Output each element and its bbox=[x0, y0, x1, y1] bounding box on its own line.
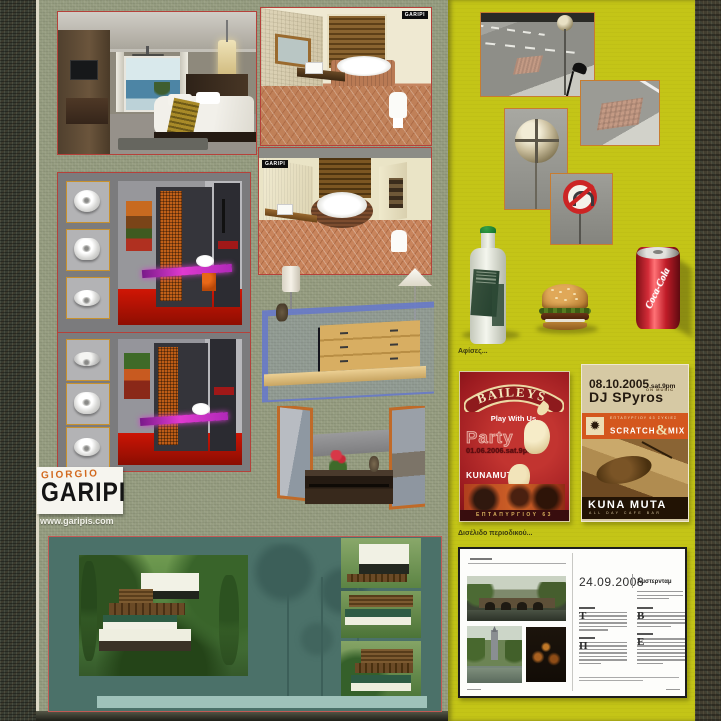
bathroom1-render: GARIPI bbox=[260, 7, 432, 146]
cream-splash-large bbox=[524, 420, 550, 454]
crosswalk-patch bbox=[513, 55, 543, 74]
vanity-b-scene bbox=[118, 339, 242, 465]
sign-pole bbox=[579, 214, 581, 244]
villa-panel bbox=[48, 536, 442, 712]
text-line bbox=[637, 659, 685, 660]
magazine-intro bbox=[637, 589, 683, 602]
bench-basin bbox=[277, 204, 293, 215]
sink-thumb-2 bbox=[66, 229, 110, 271]
text-line bbox=[637, 663, 663, 664]
curb-line bbox=[634, 80, 660, 94]
magazine-spread: 24.09.2008 Αμστερνταμ Τ Π Β bbox=[458, 547, 687, 698]
bathroom2-render: GARIPI bbox=[258, 147, 432, 275]
round-tub bbox=[317, 192, 367, 218]
teal-footer-bar bbox=[97, 696, 427, 708]
pool bbox=[345, 609, 411, 617]
villa-lower-box bbox=[99, 629, 191, 651]
right-edge-texture bbox=[695, 0, 721, 721]
baileys-datetime: 01.06.2006.sat.9pm bbox=[466, 446, 534, 455]
text-line bbox=[579, 622, 627, 623]
sphere-pole bbox=[535, 163, 537, 209]
dj-amp: & bbox=[656, 422, 669, 438]
bottle-label-side bbox=[492, 284, 504, 326]
bun-top bbox=[542, 284, 588, 310]
sink-thumb-3 bbox=[66, 277, 110, 319]
thatch-roof bbox=[119, 589, 153, 603]
turntable-photo bbox=[582, 439, 688, 501]
thatch bbox=[361, 649, 413, 663]
orange-mosaic-panel bbox=[158, 347, 178, 445]
text-line bbox=[579, 652, 627, 653]
media-cabinet bbox=[305, 470, 393, 504]
lane-dashes-1 bbox=[480, 24, 545, 36]
toilet bbox=[389, 92, 407, 118]
lamp-stand bbox=[566, 71, 574, 97]
palm-trunks bbox=[287, 567, 289, 697]
logo-garipi: GARIPI bbox=[41, 478, 119, 506]
sink-icon bbox=[74, 352, 100, 366]
sink-icon bbox=[74, 238, 100, 260]
magazine-title: Αμστερνταμ bbox=[637, 579, 672, 585]
lamp-pole bbox=[564, 29, 566, 95]
drawer-handles bbox=[340, 332, 348, 334]
text-line bbox=[579, 663, 601, 664]
dj-footer-band: KUNA MUTA ALL DAY CAFE BAR bbox=[582, 497, 688, 519]
bedroom-render bbox=[57, 11, 257, 155]
amsterdam-pano-photo bbox=[467, 576, 566, 621]
dropcap: Π bbox=[579, 642, 588, 651]
cabinet-shelf bbox=[309, 484, 389, 487]
sideboard-render bbox=[262, 295, 434, 402]
dropcap: Τ bbox=[579, 612, 586, 621]
bedroom-tv bbox=[70, 60, 98, 80]
baileys-poster: BAILEYS Play With Us. Party 01.06.2006.s… bbox=[459, 371, 570, 522]
text-line bbox=[579, 629, 608, 630]
thatch bbox=[349, 595, 413, 607]
footer-line-1 bbox=[579, 677, 679, 678]
villa-photo-small-2 bbox=[341, 591, 421, 638]
curtain-left bbox=[116, 52, 124, 112]
dj-venue-sub: ALL DAY CAFE BAR bbox=[582, 511, 688, 515]
crosswalk-patch bbox=[597, 98, 643, 131]
canal-church-photo bbox=[467, 626, 522, 683]
magazine-column-2: Β Ε bbox=[637, 607, 685, 666]
paragraph: Τ bbox=[579, 612, 627, 631]
paragraph: Ε bbox=[637, 638, 685, 664]
dj-scratch: SCRATCH bbox=[610, 426, 656, 435]
dj-poster: 08.10.2005.sat.9pm DJ SPyros ON MUSIC ✹ … bbox=[581, 364, 689, 522]
bedroom-sideboard bbox=[66, 98, 108, 124]
sesame-seeds bbox=[551, 289, 554, 291]
orange-mosaic-panel bbox=[160, 191, 182, 301]
page-fold bbox=[572, 553, 573, 691]
portfolio-board: GARIPI GARIPI bbox=[0, 0, 721, 721]
paragraph-header bbox=[579, 607, 595, 609]
road-render-4 bbox=[550, 173, 613, 245]
sphere-strap-h bbox=[515, 139, 559, 142]
dj-orange-band: ✹ ΕΠΤΑΠΥΡΓΙΟΥ 63 ΣΥΚΙΕΣ SCRATCH&MIX bbox=[582, 413, 688, 439]
villa-pool bbox=[103, 615, 177, 622]
baileys-address: ΕΠΤΑΠΥΡΓΙΟΥ 63 ΣΥΚΙΕΣ bbox=[460, 510, 569, 521]
basin bbox=[305, 62, 323, 74]
floor-lamp-shade bbox=[282, 266, 300, 292]
cabinet-handle bbox=[222, 199, 225, 233]
rug bbox=[118, 138, 208, 150]
tonearm bbox=[642, 441, 673, 459]
vanity-render-a bbox=[57, 172, 251, 334]
label-line bbox=[476, 275, 496, 278]
paragraph-header bbox=[579, 637, 595, 639]
sink-thumb-6 bbox=[66, 427, 110, 469]
paragraph-header bbox=[637, 633, 653, 635]
dj-address: ΕΠΤΑΠΥΡΓΙΟΥ 63 ΣΥΚΙΕΣ bbox=[610, 416, 677, 420]
trees bbox=[505, 640, 522, 668]
text-line bbox=[637, 595, 683, 596]
counter-basin bbox=[196, 255, 214, 267]
sink-icon bbox=[74, 392, 100, 414]
red-accent bbox=[214, 387, 234, 395]
text-line bbox=[637, 649, 685, 650]
vanity-a-scene bbox=[118, 181, 242, 325]
text-line bbox=[637, 591, 683, 592]
date-divider bbox=[632, 574, 633, 588]
burger-render bbox=[537, 284, 594, 331]
palm-foreground bbox=[81, 561, 97, 661]
dj-mix: MIX bbox=[668, 426, 685, 435]
bottom-shadow-band bbox=[36, 711, 448, 721]
villa-photo-large bbox=[79, 555, 248, 676]
road-render-2 bbox=[580, 80, 660, 146]
water bbox=[467, 668, 522, 683]
wood-drawers bbox=[320, 320, 420, 371]
page-number-left bbox=[467, 689, 481, 690]
trees bbox=[467, 638, 485, 668]
sink-icon bbox=[74, 190, 100, 212]
header-rule bbox=[468, 563, 566, 564]
baileys-tagline: Play With Us. bbox=[460, 414, 569, 423]
paragraph: Π bbox=[579, 642, 627, 664]
logo-box: GIORGIO GARIPI bbox=[37, 467, 123, 514]
magazine-column-1: Τ Π bbox=[579, 607, 627, 666]
logo-website: www.garipis.com bbox=[40, 516, 114, 526]
dj-artist-note: ON MUSIC bbox=[646, 387, 674, 392]
lamp-head-silhouette bbox=[572, 61, 589, 75]
counter-basin bbox=[192, 403, 210, 415]
sink-thumb-5 bbox=[66, 383, 110, 425]
magazine-date: 24.09.2008 bbox=[579, 575, 644, 589]
bedroom-wood-wall bbox=[58, 30, 110, 154]
dropcap: Ε bbox=[637, 638, 644, 647]
label-line bbox=[476, 271, 496, 274]
bun-bottom bbox=[543, 322, 587, 330]
decor-object bbox=[369, 456, 379, 472]
street-lights bbox=[530, 635, 562, 675]
sink-icon bbox=[74, 438, 100, 456]
lamp-cord bbox=[226, 20, 228, 42]
text-line bbox=[579, 626, 627, 627]
shelf-unit bbox=[389, 178, 403, 208]
text-line bbox=[637, 656, 685, 657]
wall-art bbox=[126, 201, 152, 251]
footer-line-2 bbox=[579, 680, 643, 681]
villa-wood-band bbox=[109, 603, 185, 615]
label-line bbox=[476, 278, 496, 281]
villa-wood bbox=[347, 574, 407, 582]
sink-icon bbox=[74, 290, 100, 306]
canal-water bbox=[467, 610, 566, 621]
scratch-mix-row: SCRATCH&MIX bbox=[610, 422, 685, 440]
text-line bbox=[637, 626, 671, 627]
dark-cabinet-right bbox=[210, 339, 236, 451]
road-top-edge bbox=[481, 13, 594, 22]
road-render-1 bbox=[480, 12, 595, 97]
turntable-platter bbox=[594, 451, 654, 488]
text-line bbox=[637, 598, 669, 599]
vase-decor bbox=[276, 303, 288, 322]
villa-box bbox=[359, 544, 409, 574]
palm-foreground-right bbox=[219, 575, 239, 665]
villa-photo-small-1 bbox=[341, 538, 421, 588]
garipi-watermark-1: GARIPI bbox=[402, 11, 428, 19]
lane-dashes-2 bbox=[485, 42, 575, 53]
dropcap: Β bbox=[637, 612, 644, 621]
cola-can-render: Coca-Cola bbox=[636, 247, 680, 329]
text-line bbox=[637, 652, 685, 653]
pool bbox=[351, 675, 411, 683]
paragraph: Β bbox=[637, 612, 685, 627]
can-tab bbox=[653, 250, 663, 254]
bathroom2-top-band bbox=[259, 148, 431, 158]
bathtub bbox=[337, 56, 391, 76]
text-line bbox=[579, 659, 627, 660]
wall-art bbox=[124, 353, 150, 399]
left-page-header bbox=[470, 558, 492, 560]
cola-script: Coca-Cola bbox=[640, 259, 676, 318]
mirror-panel-right bbox=[389, 406, 425, 510]
church-spire bbox=[492, 626, 497, 632]
paragraph-header bbox=[637, 607, 653, 609]
sink-thumb-4 bbox=[66, 339, 110, 381]
sink-thumb-1 bbox=[66, 181, 110, 223]
red-accent bbox=[218, 241, 238, 249]
tv-unit-render bbox=[277, 406, 425, 512]
orange-decor bbox=[202, 273, 216, 291]
dj-venue: KUNA MUTA bbox=[582, 497, 688, 511]
church-tower bbox=[491, 630, 498, 660]
wood-band bbox=[355, 663, 413, 673]
baileys-title: Party bbox=[466, 428, 514, 448]
left-edge-texture bbox=[0, 0, 36, 721]
bathroom2-toilet bbox=[391, 230, 407, 252]
bottle-render bbox=[466, 226, 510, 344]
posters-caption: Αφίσες... bbox=[458, 348, 488, 355]
magazine-caption: Δισέλιδο περιοδικού... bbox=[458, 530, 533, 537]
night-street-photo bbox=[526, 627, 566, 682]
bridge-arches bbox=[485, 602, 495, 610]
text-line bbox=[579, 656, 627, 657]
garipi-watermark-2: GARIPI bbox=[262, 160, 288, 168]
baileys-party-photo bbox=[464, 484, 565, 510]
vanity-render-b bbox=[57, 332, 251, 472]
sun-icon: ✹ bbox=[586, 417, 604, 435]
villa-photo-small-3 bbox=[341, 641, 421, 698]
page-number-right bbox=[666, 689, 680, 690]
text-line bbox=[637, 622, 685, 623]
